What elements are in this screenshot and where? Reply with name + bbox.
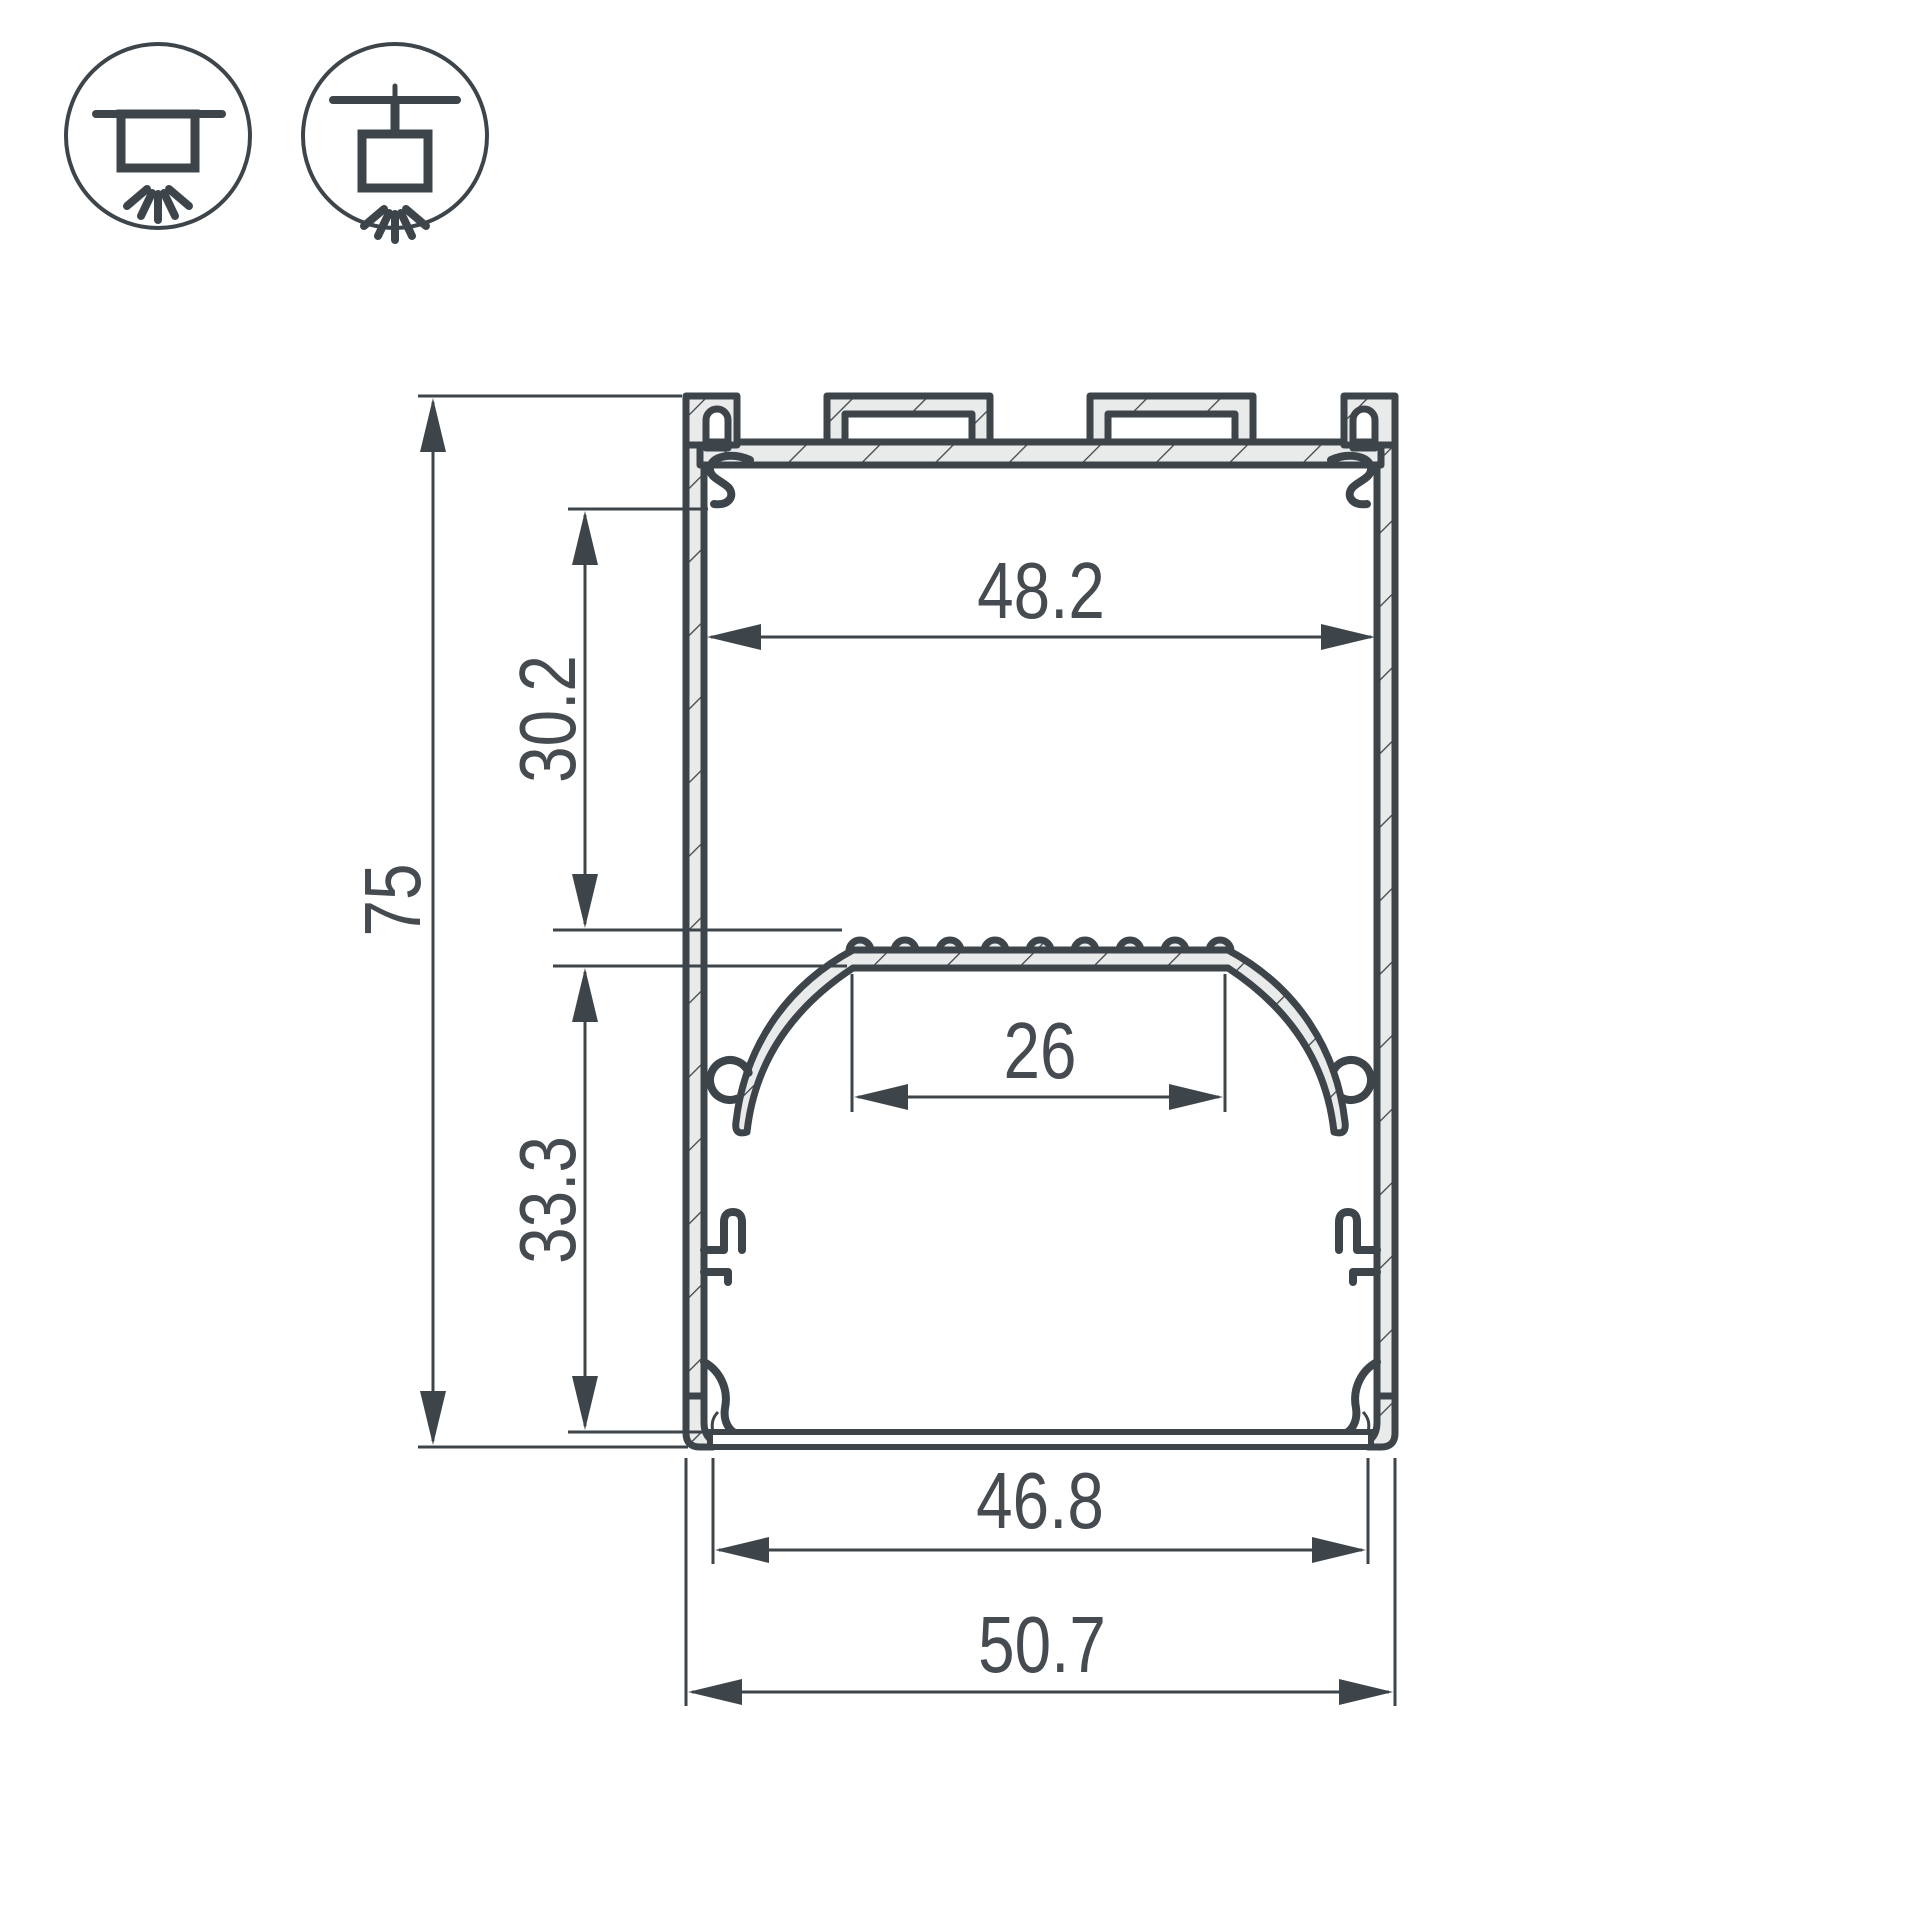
dimension-label-overall-width: 50.7 (978, 1600, 1106, 1690)
dimension-label-bottom-opening: 46.8 (976, 1456, 1104, 1546)
bottom-cover-plate (710, 1432, 1371, 1447)
technical-drawing-canvas: 75 30.2 33.3 48.2 (0, 0, 1920, 1920)
dimension-label-upper-cavity: 30.2 (503, 655, 593, 783)
dimension-label-diffuser-width: 26 (1004, 1006, 1077, 1096)
dimension-label-inner-width: 48.2 (977, 546, 1105, 636)
left-wall (686, 420, 704, 1400)
luminaire-box (121, 114, 195, 168)
dimension-label-lower-cavity: 33.3 (503, 1136, 593, 1264)
surface-mount-icon (66, 44, 250, 228)
top-ceiling-plate (700, 442, 1381, 465)
right-wall (1377, 420, 1395, 1400)
luminaire-box (362, 134, 428, 188)
dimension-label-overall-height: 75 (348, 864, 438, 937)
